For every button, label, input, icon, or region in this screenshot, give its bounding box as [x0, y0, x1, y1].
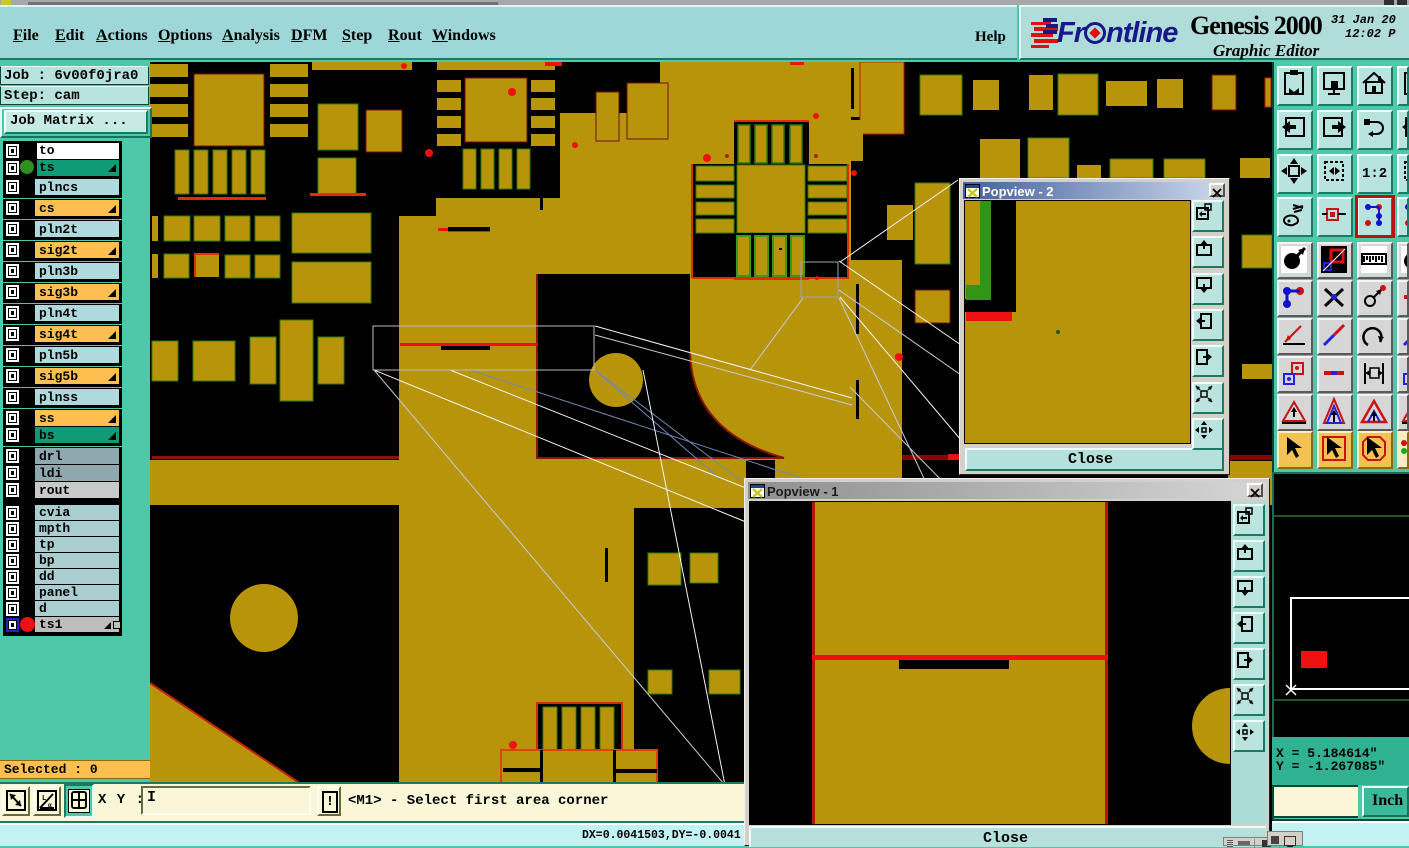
svg-text:L: L [42, 795, 46, 803]
svg-text:1:2: 1:2 [1362, 166, 1387, 182]
svg-text:α: α [48, 802, 52, 809]
